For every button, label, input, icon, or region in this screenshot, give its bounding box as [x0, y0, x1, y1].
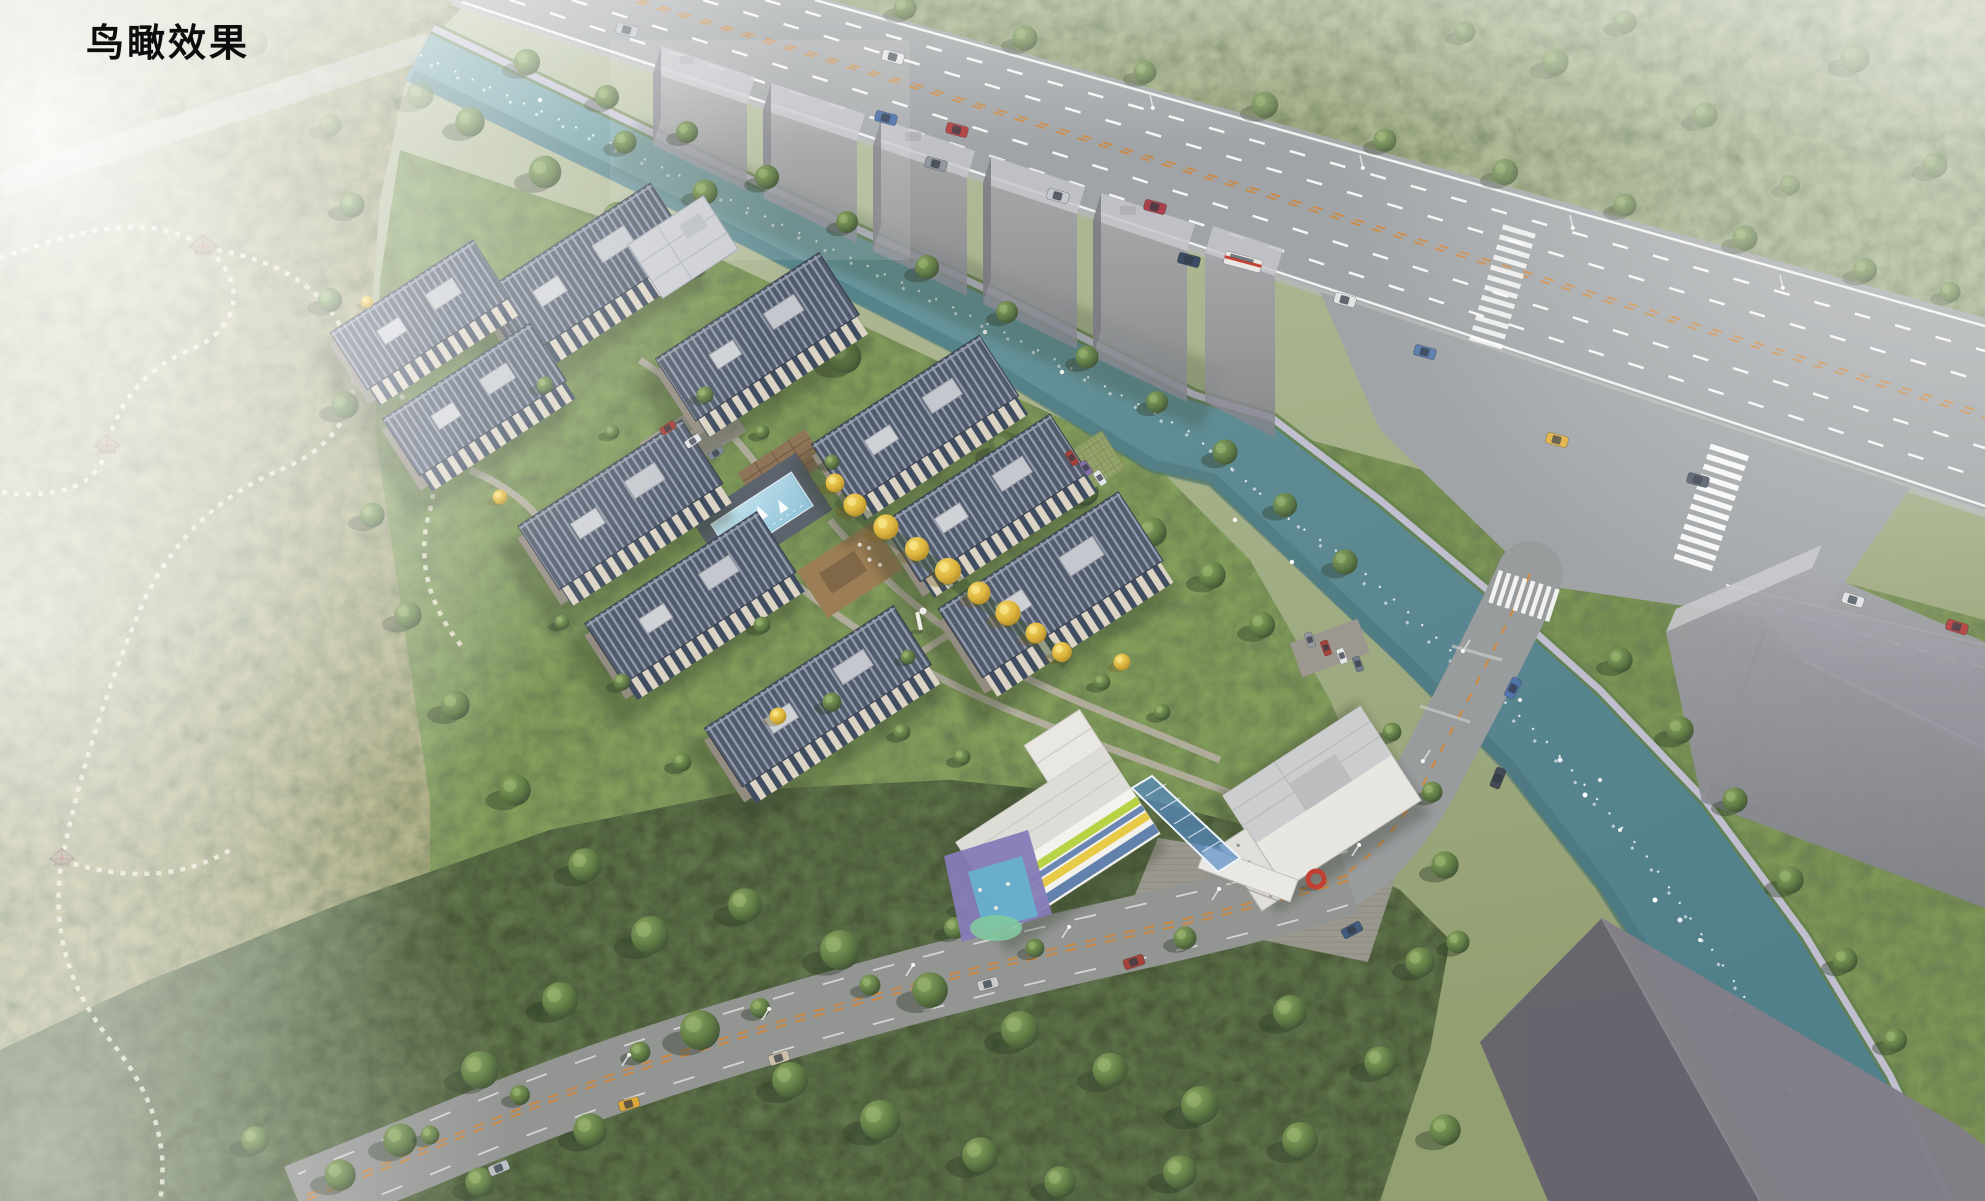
- fog-overlay: [0, 0, 1985, 1201]
- page-title: 鸟瞰效果: [86, 12, 250, 67]
- rendered-scene: [0, 0, 1985, 1201]
- aerial-view-rendering: 鸟瞰效果: [0, 0, 1985, 1201]
